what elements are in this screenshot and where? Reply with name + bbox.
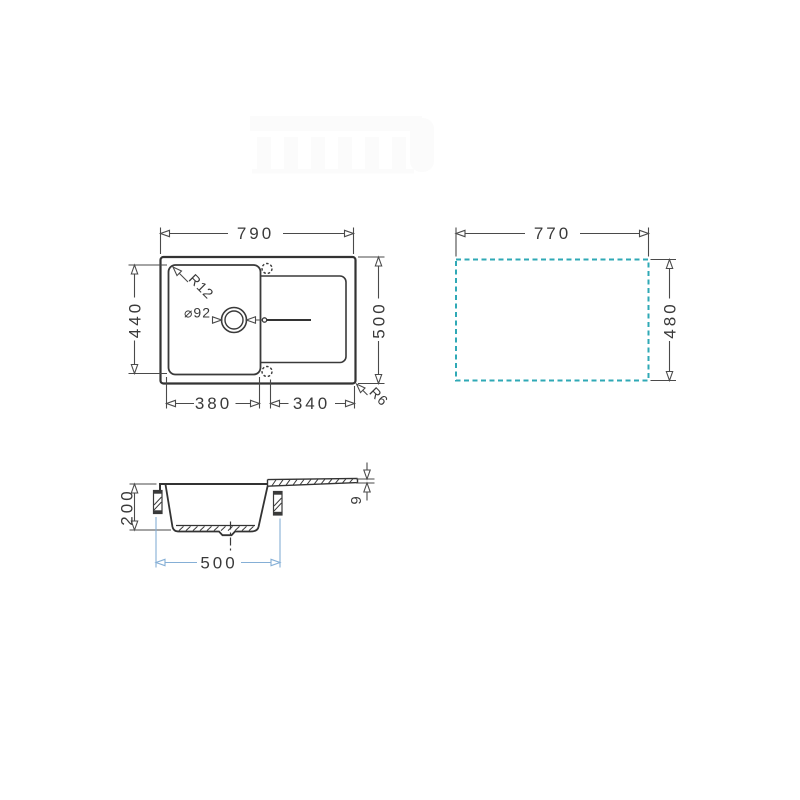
callout-r6-label: R6 <box>366 384 391 409</box>
dim-440-label: 440 <box>126 301 145 338</box>
bowl-right-wall <box>259 487 268 528</box>
cutout-outline <box>456 260 649 381</box>
bowl-bottom <box>173 527 259 535</box>
tap-hole-bottom <box>262 367 272 377</box>
dim-9-label: 9 <box>348 495 365 504</box>
dim-770: 770 <box>456 224 649 257</box>
dim-790-label: 790 <box>237 224 274 243</box>
sink-technical-drawing: 790 500 440 380 <box>0 0 800 800</box>
side-view: 200 9 500 <box>118 463 375 573</box>
dim-500-label: 500 <box>370 301 389 338</box>
mounting-clip-left <box>154 491 163 514</box>
dim-770-label: 770 <box>534 224 571 243</box>
bowl-bottom-hatching <box>179 526 254 530</box>
dim-340-label: 340 <box>293 394 330 413</box>
callout-r6: R6 <box>357 384 392 409</box>
dim-500-right: 500 <box>358 257 389 384</box>
top-view: 790 500 440 380 <box>126 224 392 413</box>
dim-790: 790 <box>161 224 354 254</box>
rim-left-edge <box>160 484 268 491</box>
dim-480: 480 <box>651 260 680 381</box>
drawing-page: 790 500 440 380 <box>0 0 800 800</box>
watermark-basket <box>250 116 434 174</box>
dim-380-label: 380 <box>195 394 232 413</box>
dim-drain-diameter-label: ⌀92 <box>184 305 211 321</box>
dim-480-label: 480 <box>661 301 680 338</box>
cutout-view: 770 480 <box>456 224 680 381</box>
bowl-left-wall <box>166 485 173 528</box>
tap-node <box>262 318 266 322</box>
tap-hole-top <box>262 264 272 274</box>
dim-9: 9 <box>348 463 375 505</box>
dim-200-label: 200 <box>118 488 137 525</box>
mounting-clip-right <box>274 492 283 516</box>
dim-500-bottom-label: 500 <box>200 554 237 573</box>
dim-200: 200 <box>118 484 172 530</box>
